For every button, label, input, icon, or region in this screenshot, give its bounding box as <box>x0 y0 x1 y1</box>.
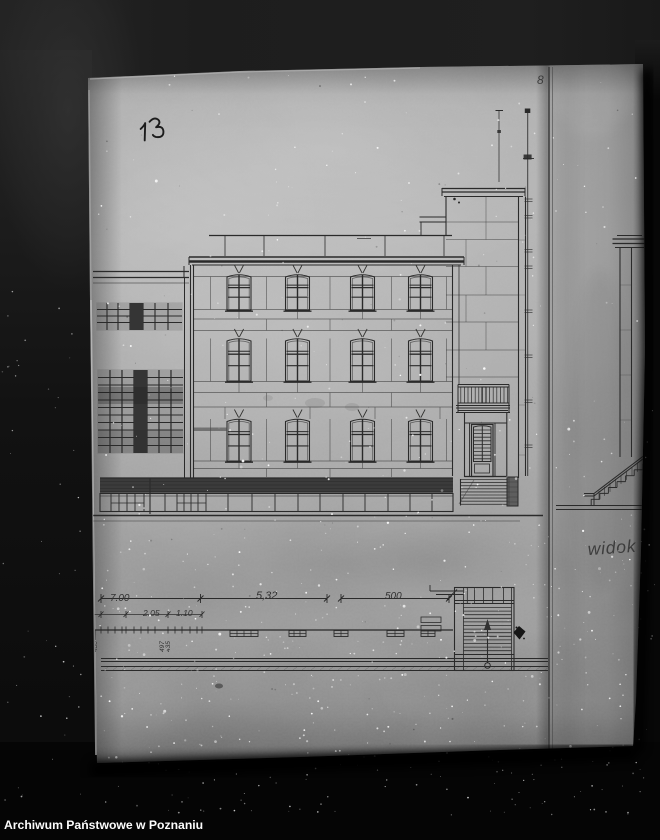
svg-text:2.05: 2.05 <box>142 608 160 618</box>
svg-text:500: 500 <box>385 591 402 602</box>
svg-text:1.10: 1.10 <box>176 608 193 618</box>
svg-text:435: 435 <box>165 641 172 652</box>
svg-text:5,32: 5,32 <box>256 590 277 602</box>
svg-text:7.00: 7.00 <box>110 593 130 604</box>
svg-text:widok: widok <box>587 536 637 559</box>
svg-text:Archiwum Państwowe w Poznaniu: Archiwum Państwowe w Poznaniu <box>4 818 203 832</box>
svg-text:8: 8 <box>537 73 544 87</box>
